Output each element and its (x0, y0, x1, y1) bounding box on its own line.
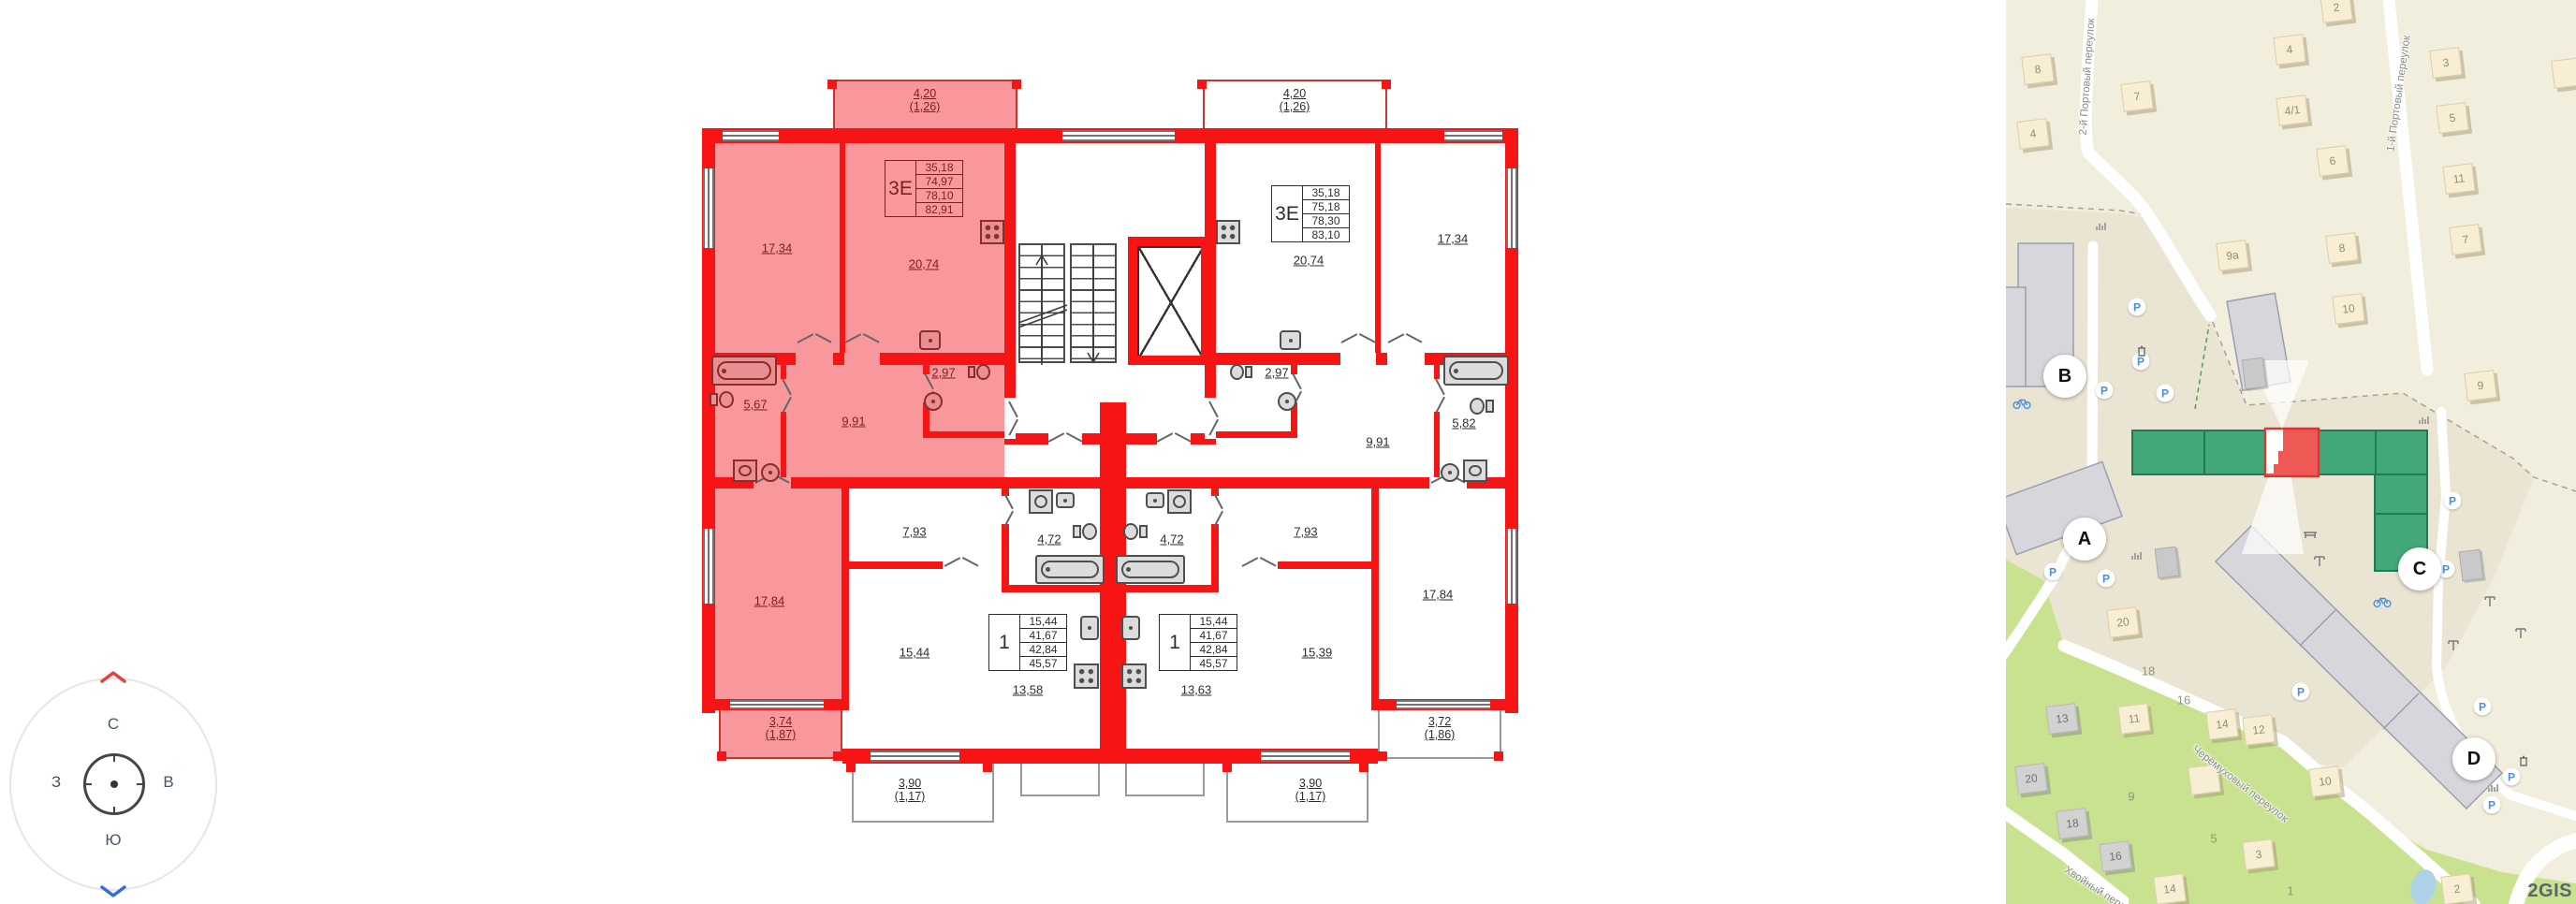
sink-icon (1146, 492, 1164, 508)
bathtub-icon (1116, 555, 1185, 584)
twogis-logo[interactable]: 2GIS (2527, 881, 2572, 902)
window-bay (1125, 763, 1205, 796)
building-marker-a[interactable]: A (2063, 518, 2106, 561)
door-opening (1387, 353, 1425, 365)
round-sink-icon (1278, 392, 1296, 411)
door-icon (944, 558, 978, 573)
window (730, 700, 824, 709)
toilet-icon (1470, 398, 1494, 415)
wall-post (1494, 751, 1503, 761)
window (723, 130, 779, 141)
window-bay (1020, 763, 1100, 796)
window (1444, 130, 1502, 141)
loggia-label: 3,72(1,86) (1425, 715, 1456, 741)
window (1062, 130, 1175, 141)
wall (1128, 356, 1210, 365)
minimap[interactable]: 8479а244/1356118710920111412314102132018… (2006, 0, 2576, 904)
wall (1113, 585, 1219, 592)
washer-icon (1463, 459, 1487, 482)
washer-icon (733, 459, 757, 482)
room-label: 17,84 (1423, 588, 1454, 602)
balcony-label: 4,20(1,26) (1280, 87, 1310, 113)
wall (1128, 237, 1137, 365)
wall (840, 143, 845, 353)
room-label: 15,39 (1302, 646, 1333, 660)
window (703, 529, 714, 604)
door-icon (1203, 401, 1218, 435)
wall-post (717, 751, 726, 761)
wall-post (833, 751, 842, 761)
apartment-info-table: 1 15,4441,67 42,8445,57 (1159, 614, 1237, 671)
round-sink-icon (924, 392, 943, 411)
wall (1002, 585, 1107, 592)
balcony-label: 3,90(1,17) (1295, 777, 1326, 803)
wall (1128, 237, 1210, 246)
room-label: 15,44 (900, 646, 930, 660)
room-label: 5,67 (743, 398, 767, 412)
door-icon (1341, 334, 1375, 349)
stove-icon (1216, 220, 1240, 244)
wall-post (1378, 751, 1387, 761)
washer-icon (1167, 489, 1192, 514)
door-icon (1003, 401, 1017, 435)
door-icon (776, 379, 791, 413)
bathtub-icon (711, 356, 777, 386)
wall-post (1359, 763, 1368, 772)
toilet-icon (968, 364, 990, 380)
compass-dial-icon (83, 753, 145, 815)
door-icon (1388, 334, 1422, 349)
room-label: 7,93 (902, 525, 926, 539)
door-icon (1207, 493, 1222, 527)
toilet-icon (710, 391, 734, 408)
sink-icon (1121, 616, 1140, 640)
door-icon (998, 493, 1013, 527)
washer-icon (1029, 489, 1053, 514)
stove-icon (1074, 663, 1099, 689)
room-label: 9,91 (1366, 435, 1389, 449)
window (1506, 529, 1517, 604)
sink-icon (1056, 492, 1075, 508)
compass-north-label: С (108, 715, 119, 734)
bathtub-icon (1035, 555, 1105, 584)
door-icon (1242, 558, 1276, 573)
door-icon (798, 334, 831, 349)
apartment-info-table: 1 15,4441,67 42,8445,57 (988, 614, 1067, 671)
building-marker-b[interactable]: B (2043, 355, 2086, 398)
sink-icon (1280, 330, 1301, 350)
building-marker-c[interactable]: C (2398, 547, 2441, 591)
wall-post (827, 80, 837, 89)
loggia-label: 3,74(1,87) (766, 715, 797, 741)
room-label: 17,34 (762, 241, 793, 255)
round-sink-icon (761, 463, 780, 482)
window (1397, 700, 1490, 709)
wall (1371, 488, 1379, 699)
room-label: 5,82 (1452, 416, 1475, 430)
room-label: 9,91 (842, 415, 865, 429)
sink-icon (1080, 616, 1099, 640)
window (871, 751, 959, 762)
door-icon (1157, 433, 1191, 448)
room-label: 4,72 (1037, 532, 1061, 547)
wall (1201, 237, 1210, 365)
wall-post (1012, 80, 1021, 89)
compass-south-label: Ю (105, 831, 121, 850)
wall (1278, 561, 1371, 569)
room-label: 20,74 (909, 257, 940, 271)
room-label: 7,93 (1294, 525, 1317, 539)
wall (849, 561, 943, 569)
wall-post (846, 763, 856, 772)
door-opening (844, 353, 880, 365)
stair-arrows-icon (1018, 234, 1121, 379)
chevron-down-icon[interactable] (99, 884, 127, 898)
wall-post (1222, 763, 1232, 772)
toilet-icon (1123, 523, 1148, 540)
compass-east-label: В (163, 773, 173, 792)
room-label: 17,84 (754, 594, 785, 608)
room-label: 2,97 (1265, 366, 1288, 380)
room-label: 17,34 (1438, 232, 1469, 246)
chevron-up-icon[interactable] (99, 670, 127, 684)
room-label: 20,74 (1294, 254, 1325, 268)
window (1261, 751, 1350, 762)
wall-post (983, 763, 992, 772)
door-icon (845, 334, 879, 349)
wall (1216, 431, 1297, 438)
door-opening (796, 353, 833, 365)
toilet-icon (1073, 523, 1097, 540)
compass-west-label: З (51, 773, 61, 792)
room-label: 2,97 (931, 366, 955, 380)
sink-icon (919, 330, 941, 350)
building-marker-d[interactable]: D (2452, 737, 2495, 780)
floor-plan: 17,34 20,74 5,67 9,91 2,97 17,84 4,20(1,… (702, 80, 1518, 828)
floorplan-page: С Ю З В (0, 0, 2576, 904)
apartment-info-table: 3Е 35,1875,18 78,3083,10 (1271, 185, 1350, 242)
room-label: 4,72 (1160, 532, 1183, 547)
elevator-shaft (1137, 246, 1205, 359)
stove-icon (980, 220, 1004, 244)
room-label: 13,58 (1013, 683, 1044, 697)
balcony-label: 3,90(1,17) (895, 777, 926, 803)
wall (1375, 143, 1381, 353)
window (703, 168, 714, 248)
room-label: 13,63 (1181, 683, 1212, 697)
window (1506, 168, 1517, 248)
door-opening (1340, 353, 1376, 365)
door-icon (1429, 379, 1444, 413)
apartment-info-table: 3Е 35,1874,97 78,1082,91 (885, 160, 963, 217)
bathtub-icon (1443, 356, 1509, 386)
round-sink-icon (1441, 463, 1459, 482)
wall (842, 488, 849, 699)
balcony-label: 4,20(1,26) (910, 87, 941, 113)
compass: С Ю З В (7, 670, 219, 898)
wall-post (1197, 80, 1207, 89)
wall-post (1382, 80, 1391, 89)
stove-icon (1121, 663, 1147, 689)
toilet-icon (1230, 364, 1252, 380)
wall (923, 431, 1004, 438)
door-icon (1048, 433, 1082, 448)
